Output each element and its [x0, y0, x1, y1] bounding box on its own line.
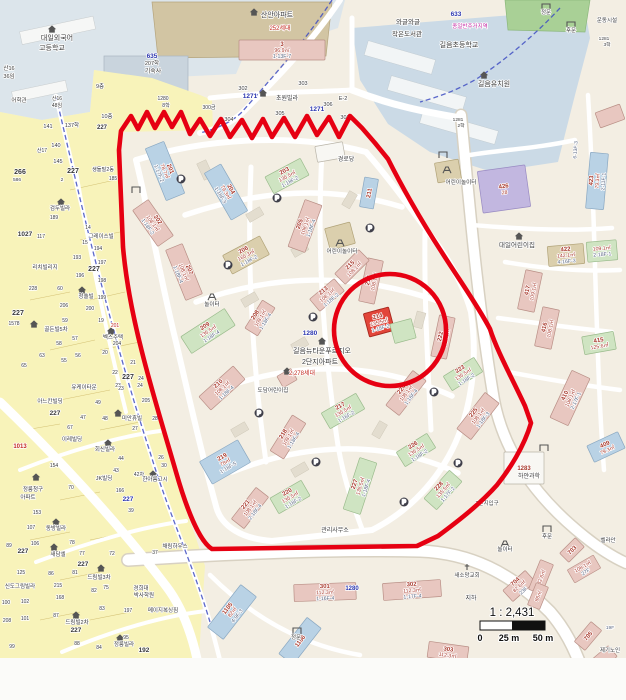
map-label: 2학 — [457, 122, 465, 129]
map-label: 192 — [139, 647, 150, 654]
map-label: 3학 — [603, 41, 611, 48]
building-3: 396.9㎡1-13F-7 — [239, 40, 325, 60]
parking-icon: P — [312, 458, 321, 467]
map-label: 205 — [142, 398, 151, 404]
map-label: 199 — [98, 295, 107, 301]
map-label: 경희대 — [133, 584, 148, 592]
map-label: 동방빌라 — [46, 524, 66, 532]
map-label: 55 — [61, 358, 67, 364]
map-label: 14 — [85, 225, 91, 231]
map-label: 22 — [112, 370, 118, 376]
map-label: E-2 — [339, 96, 348, 102]
map-label: 59 — [62, 318, 68, 324]
map-label: 2,278세대 — [289, 369, 315, 377]
map-label: 종일반주거지역 — [452, 22, 487, 30]
map-label: 303 — [298, 81, 307, 87]
map-label: 청솔빌 — [78, 292, 93, 300]
map-label: 141 — [43, 124, 52, 130]
parking-icon: P — [224, 261, 233, 270]
map-label: 후문 — [542, 533, 552, 540]
map-label: 227 — [67, 168, 79, 175]
map-label: 227 — [122, 374, 134, 381]
map-label: 신도그림빌라 — [5, 582, 35, 590]
map-label: 88 — [74, 641, 80, 647]
map-label: 204 — [113, 341, 122, 347]
map-label: 채림하우스 — [162, 542, 187, 550]
map-label: 99 — [9, 644, 15, 650]
map-label: 새담셀 — [50, 550, 65, 558]
map-label: 57 — [72, 336, 78, 342]
map-label: 관리사무소 — [321, 526, 349, 534]
map-label: 44 — [118, 456, 124, 462]
map-label: 회신빌라 — [95, 445, 115, 453]
map-label: 21 — [130, 360, 136, 366]
map-label: 70 — [68, 485, 74, 491]
map-label: 1281 — [453, 117, 464, 123]
map-label: 43 — [113, 468, 119, 474]
map-label: 102 — [21, 599, 30, 605]
map-label: 227 — [50, 410, 61, 417]
map-label: 고등학교 — [39, 43, 65, 52]
map-label: 8학 — [162, 102, 170, 109]
map-label: 185 — [109, 176, 118, 182]
map-label: 미안휴빌 — [122, 414, 142, 422]
map-label: 227 — [12, 310, 24, 317]
map-label: 1271 — [243, 93, 258, 100]
map-label: 72 — [109, 551, 115, 557]
map-label: 하얀과학 — [518, 472, 541, 480]
map-label: 10층 — [101, 112, 112, 120]
map-label: 227 — [18, 548, 29, 555]
map-label: 어린이놀이터 — [327, 247, 358, 255]
map-label: 리치빌리지 — [32, 263, 57, 271]
map-label: 65 — [21, 363, 27, 369]
building-label: 96.9㎡ — [274, 46, 290, 54]
map-label: 19F — [606, 625, 614, 631]
map-label: 28 — [152, 416, 158, 422]
map-label: 9층 — [96, 82, 104, 90]
map-label: 67 — [67, 425, 73, 431]
map-label: 한아름고시 — [142, 475, 167, 483]
map-label: 유케이타운 — [71, 383, 96, 391]
map-label: 산16 — [52, 95, 62, 102]
building-label: 1-16F-4 — [316, 596, 334, 603]
map-label: 도담어린이집 — [258, 386, 289, 394]
map-label: 대일어린이집 — [499, 240, 535, 249]
map-label: 633 — [451, 11, 462, 18]
map-label: 산17 — [37, 147, 47, 154]
map-label: 100 — [2, 600, 11, 606]
map-label: 75 — [103, 585, 109, 591]
map-label: 어학관 — [11, 96, 26, 104]
map-label: 새소망교회 — [454, 571, 479, 579]
map-label: 189 — [50, 215, 59, 221]
map-label: 초원빌라 — [276, 94, 299, 102]
svg-text:P: P — [226, 263, 230, 269]
map-label: 137학 — [65, 121, 79, 129]
map-label: 기숙사 — [145, 67, 162, 75]
map-label: 154 — [50, 463, 59, 469]
parking-icon: P — [255, 409, 264, 418]
map-label: 아파트 — [20, 493, 35, 501]
scale-bar-white — [480, 621, 513, 630]
map-label: 운동시설 — [597, 16, 617, 24]
svg-text:P: P — [275, 196, 279, 202]
svg-text:P: P — [368, 226, 372, 232]
map-label: 길음유치원 — [478, 79, 510, 88]
map-label: 23 — [118, 386, 124, 392]
map-margin-bottom — [0, 658, 626, 700]
svg-text:P: P — [314, 460, 318, 466]
scale-tick-0: 0 — [477, 633, 482, 643]
map-label: 벡스주택 — [103, 333, 123, 341]
parking-icon: P — [177, 175, 186, 184]
map-label: 49 — [95, 400, 101, 406]
map-label: 48 — [102, 416, 108, 422]
map-label: 2 — [61, 177, 64, 183]
map-label: 경로당 — [338, 155, 355, 163]
svg-text:P: P — [456, 461, 460, 467]
svg-text:P: P — [257, 411, 261, 417]
map-label: 83 — [99, 606, 105, 612]
map-label: 벨라안 — [600, 536, 615, 544]
map-label: 227 — [78, 561, 89, 568]
map-label: 193 — [73, 255, 82, 261]
map-label: 26 — [158, 455, 164, 461]
map-label: 아느칸빌딩 — [37, 397, 62, 405]
map-label: 140 — [51, 143, 60, 149]
map-label: 87 — [53, 613, 59, 619]
building-label: 1-13F-7 — [273, 54, 291, 60]
parking-icon: P — [309, 313, 318, 322]
svg-text:P: P — [179, 177, 183, 183]
map-label: 1280 — [157, 96, 168, 102]
building-label: 28 — [501, 190, 508, 197]
map-label: 77 — [79, 551, 85, 557]
map-label: 대일외국어 — [41, 33, 73, 42]
parking-icon: P — [366, 224, 375, 233]
map-label: 24 — [137, 383, 143, 389]
map-label: 48임 — [52, 102, 62, 109]
map-label: 306 — [323, 102, 332, 108]
map-label: 길음초등학교 — [440, 40, 479, 49]
map-label: 놀이터 — [204, 300, 219, 308]
map-label: 놀이터 — [497, 545, 512, 553]
map-label: 78 — [69, 540, 75, 546]
map-label: 197 — [124, 608, 133, 614]
map-canvas[interactable]: 20178.7㎡1-17F-2202108.1㎡1-18F-2207108.1㎡… — [0, 0, 626, 700]
map-label: 19 — [98, 318, 104, 324]
map-label: 227 — [123, 496, 134, 503]
map-label: 1027 — [18, 231, 33, 238]
map-label: 산안아파트 — [261, 10, 294, 19]
map-label: 207학 — [145, 59, 159, 67]
map-label: 37 — [152, 550, 158, 556]
map-label: 검두빌라 — [50, 204, 70, 212]
zone-sports-field — [505, 0, 590, 32]
map-label: 드림빌2차 — [65, 618, 88, 626]
map-label: 635 — [147, 53, 158, 60]
building: 109.1㎡2-18F-1 — [586, 240, 618, 263]
map-label: 117 — [37, 234, 45, 240]
map-label: 정릉청구 — [23, 486, 43, 493]
scale-ratio-text: 1 : 2,431 — [490, 607, 535, 619]
map-label: 1013 — [13, 444, 27, 450]
map-label: 198 — [98, 278, 107, 284]
map-label: 드림빌3차 — [87, 573, 110, 581]
map-label: 215 — [54, 583, 63, 589]
map-label: 15 — [82, 240, 88, 246]
map-label: 56 — [75, 353, 81, 359]
map-label: 36임 — [3, 72, 14, 80]
map-label: 252세대 — [269, 24, 290, 32]
map-label: 95 — [123, 635, 129, 641]
map-label: 101 — [21, 616, 30, 622]
svg-text:P: P — [432, 390, 436, 396]
map-label: 302 — [238, 86, 247, 92]
map-label: JK빌딩 — [96, 474, 113, 482]
map-label: 81 — [72, 570, 78, 576]
map-label: 길음뉴타운푸르지오 — [293, 346, 352, 355]
map-label: 304 — [224, 117, 233, 123]
building-426: 42628 — [477, 165, 530, 213]
map-label: 2단지아파트 — [302, 357, 339, 366]
building-label: 1283 — [517, 466, 531, 472]
map-label: 생들빌2동 — [92, 165, 114, 173]
svg-text:P: P — [402, 500, 406, 506]
parking-icon: P — [430, 388, 439, 397]
map-label: 이레빌딩 — [62, 435, 82, 443]
map-label: 89 — [6, 543, 12, 549]
svg-text:P: P — [311, 315, 315, 321]
map-label: 227 — [88, 266, 100, 273]
map-label: 30 — [161, 463, 167, 469]
parking-icon: P — [273, 194, 282, 203]
map-label: 27 — [132, 426, 138, 432]
map-label: 206 — [60, 303, 69, 309]
map-label: 어린이놀이터 — [446, 178, 477, 186]
map-label: 82 — [91, 588, 97, 594]
map-label: 1271 — [310, 106, 325, 113]
map-label: 106 — [31, 541, 40, 547]
map-label: 60 — [57, 286, 63, 292]
map-screenshot: 20178.7㎡1-17F-2202108.1㎡1-18F-2207108.1㎡… — [0, 0, 626, 700]
map-label: 145 — [53, 159, 62, 165]
map-label: 58 — [56, 341, 62, 347]
map-label: 125 — [17, 570, 26, 576]
map-label: 1281 — [599, 36, 610, 42]
map-label: 84 — [96, 645, 102, 651]
scale-tick-50: 50 m — [533, 633, 554, 643]
map-label: 200 — [86, 306, 95, 312]
map-label: 228 — [29, 286, 38, 292]
map-label: 586 — [13, 177, 21, 183]
map-label: 63 — [39, 353, 45, 359]
map-label: 197 — [98, 260, 107, 266]
map-label: 정문 — [291, 634, 301, 641]
parking-icon: P — [454, 459, 463, 468]
map-label: 작은도서관 — [392, 29, 422, 38]
map-label: 227 — [97, 125, 108, 131]
map-label: 메이지복싱짐 — [148, 606, 178, 614]
map-label: 194 — [94, 246, 103, 252]
map-label: 107 — [27, 525, 36, 531]
map-label: 그레이스빌 — [88, 232, 113, 240]
map-label: 20 — [102, 350, 108, 356]
map-label: 227 — [71, 627, 82, 634]
map-label: 201 — [111, 323, 120, 329]
map-label: 300금 — [203, 105, 216, 111]
map-label: 골든빌5차 — [44, 325, 67, 333]
map-label: 1280 — [345, 586, 359, 592]
map-label: 168 — [56, 595, 65, 601]
parking-icon: P — [400, 498, 409, 507]
map-label: 산16 — [3, 64, 14, 72]
scale-bar-black — [513, 621, 546, 630]
map-label: 정문 — [541, 9, 551, 16]
map-label: 208 — [3, 618, 12, 624]
building-422: 422142.1㎡4-16F-3 — [547, 243, 585, 266]
map-label: 24 — [138, 376, 144, 382]
map-label: 39 — [128, 508, 134, 514]
map-label: 153 — [33, 510, 42, 516]
building-label: 1-17F-4 — [403, 593, 422, 600]
map-label: 47 — [80, 415, 86, 421]
map-label: 와글와글 — [396, 18, 420, 26]
map-label: 제기노인 — [600, 646, 620, 654]
map-label: 266 — [14, 169, 26, 176]
map-label: 196 — [76, 273, 85, 279]
scale-tick-25: 25 m — [499, 633, 520, 643]
map-label: 박사학원 — [134, 591, 154, 599]
map-label: 86 — [48, 571, 54, 577]
map-label: 후문 — [566, 27, 576, 34]
map-label: 1280 — [303, 330, 318, 337]
map-label: 정릉빌라 — [114, 640, 134, 648]
map-label: 지하 — [465, 594, 477, 602]
map-label: 166 — [116, 488, 125, 494]
map-label: 1578 — [8, 321, 19, 327]
